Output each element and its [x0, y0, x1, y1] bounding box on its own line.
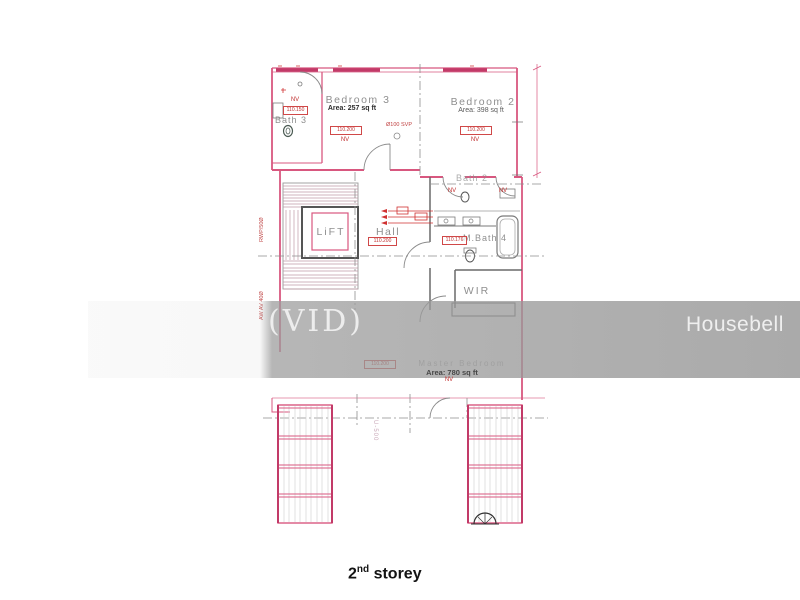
- svp-pipe-icon: [394, 133, 400, 139]
- shower-icon: [298, 82, 302, 86]
- nv-label: NV: [448, 188, 456, 194]
- arrow-icon: [381, 221, 387, 225]
- toilet-icon: [284, 126, 293, 137]
- u500-annotation: U-500: [372, 420, 378, 441]
- floorplan-page: { "watermark": { "vid_text": "(VID)", "b…: [0, 0, 800, 600]
- room-label-mbath4: M.Bath 4: [463, 233, 507, 243]
- floor-plan-drawing: [0, 0, 800, 600]
- room-label-bath3: Bath 3: [275, 115, 307, 125]
- vid-watermark: (VID): [268, 304, 364, 339]
- nv-label: NV: [499, 188, 507, 194]
- terrace-louvres-right: [468, 405, 522, 523]
- nv-label: NV: [445, 377, 453, 383]
- sink-icon: [438, 217, 455, 225]
- door-arc: [404, 242, 430, 268]
- tag-hall: 110.200: [368, 237, 397, 246]
- room-label-wir: WIR: [464, 285, 490, 297]
- area-label-master: Area: 780 sq ft: [426, 368, 478, 377]
- dimension-line: [533, 64, 541, 178]
- rwp-annotation: RWP/50Ø: [259, 217, 265, 242]
- door-arc: [364, 144, 390, 170]
- area-label-bedroom3: Area: 257 sq ft: [328, 105, 376, 112]
- housebell-watermark: Housebell: [686, 313, 784, 337]
- storey-number: 2: [348, 565, 357, 582]
- storey-ordinal: nd: [357, 564, 369, 575]
- storey-caption: 2nd storey: [348, 564, 422, 583]
- storey-word: storey: [374, 565, 422, 582]
- terrace-louvres-left: [278, 405, 332, 523]
- door-arc: [300, 72, 322, 94]
- door-arc: [430, 398, 450, 418]
- room-label-bath2: Bath 2: [456, 173, 488, 183]
- tag-bath3: 110.150: [283, 106, 308, 115]
- arrow-icon: [381, 209, 387, 213]
- tag-mbath4: 110.176: [442, 236, 467, 245]
- nv-label: NV: [291, 97, 299, 103]
- sink-icon: [463, 217, 480, 225]
- room-label-lift: LiFT: [317, 226, 346, 238]
- room-label-master: Master Bedroom: [418, 359, 505, 368]
- svp-annotation: Ø100 SVP: [386, 122, 412, 128]
- tag-bedroom2: 110.200: [460, 126, 492, 135]
- nv-label: NV: [341, 137, 349, 143]
- nv-label: NV: [471, 137, 479, 143]
- tag-bedroom3: 110.200: [330, 126, 362, 135]
- area-label-bedroom2: Area: 398 sq ft: [458, 107, 504, 114]
- arrow-icon: [381, 215, 387, 219]
